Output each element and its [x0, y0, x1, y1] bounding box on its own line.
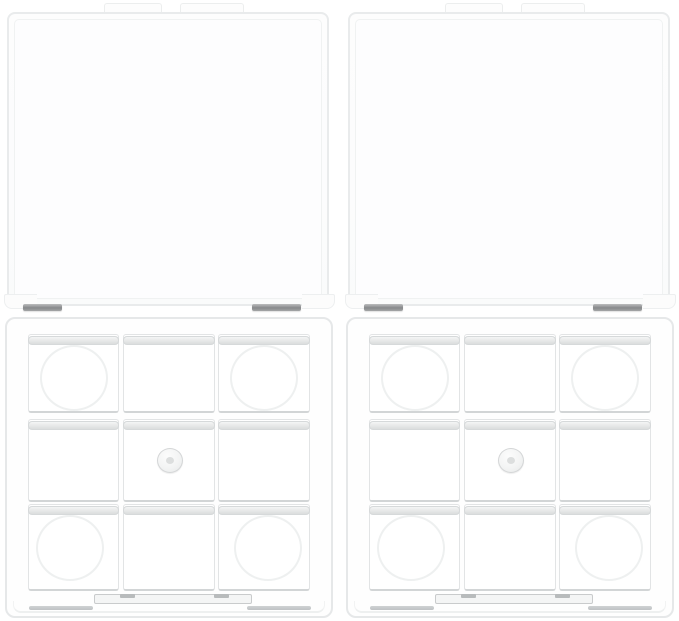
well-lip [123, 506, 215, 515]
pan-well-r1c2 [123, 334, 215, 413]
base-tray [5, 317, 333, 618]
magnet-button-dot [507, 457, 515, 464]
well-lip [218, 421, 310, 430]
well-lip [369, 421, 460, 430]
palette-right [343, 0, 677, 621]
pan-well-r3c3 [559, 504, 651, 591]
round-pan-recess [36, 515, 104, 581]
pan-well-r2c2 [464, 419, 556, 502]
pan-well-r1c1 [28, 334, 119, 413]
pan-well-r3c1 [28, 504, 119, 591]
pan-well-r3c2 [123, 504, 215, 591]
pan-well-r2c1 [28, 419, 119, 502]
latch-bar [435, 594, 593, 604]
well-lip [559, 336, 651, 345]
lid-inner-frame [14, 19, 322, 299]
pan-well-r1c3 [218, 334, 310, 413]
bottom-trim-line-right [588, 606, 652, 610]
latch-notch [120, 594, 135, 598]
round-pan-recess [377, 515, 445, 581]
well-lip [218, 506, 310, 515]
round-pan-recess [381, 345, 449, 411]
hinge-pin-right [252, 304, 301, 311]
well-lip [464, 336, 556, 345]
pan-well-r1c2 [464, 334, 556, 413]
well-lip [218, 336, 310, 345]
well-lip [559, 506, 651, 515]
latch-notch [214, 594, 229, 598]
hinge-pin-right [593, 304, 642, 311]
round-pan-recess [575, 515, 643, 581]
magnet-button-dot [166, 457, 174, 464]
magnet-button [157, 448, 183, 473]
open-lid [7, 12, 329, 306]
well-lip [28, 336, 119, 345]
pan-well-r3c1 [369, 504, 460, 591]
pan-well-r3c3 [218, 504, 310, 591]
lid-corner-flange-right [643, 294, 676, 309]
round-pan-recess [230, 345, 298, 411]
pan-well-r2c2 [123, 419, 215, 502]
base-tray [346, 317, 674, 618]
round-pan-recess [571, 345, 639, 411]
pan-well-r1c1 [369, 334, 460, 413]
pan-well-r3c2 [464, 504, 556, 591]
well-lip [369, 336, 460, 345]
lid-corner-flange-right [302, 294, 335, 309]
bottom-trim-line-right [247, 606, 311, 610]
well-lip [28, 421, 119, 430]
hinge-pin-left [364, 304, 403, 311]
well-lip [123, 336, 215, 345]
latch-notch [555, 594, 570, 598]
hinge-pin-left [23, 304, 62, 311]
well-lip [28, 506, 119, 515]
round-pan-recess [40, 345, 108, 411]
well-lip [369, 506, 460, 515]
well-lip [123, 421, 215, 430]
pan-well-r2c1 [369, 419, 460, 502]
palette-left [2, 0, 336, 621]
well-lip [559, 421, 651, 430]
latch-bar [94, 594, 252, 604]
latch-notch [461, 594, 476, 598]
magnet-button [498, 448, 524, 473]
bottom-trim-line-left [29, 606, 93, 610]
well-lip [464, 421, 556, 430]
pan-well-r2c3 [218, 419, 310, 502]
pan-well-r2c3 [559, 419, 651, 502]
open-lid [348, 12, 670, 306]
photo-caption: Two identical empty clear transparent pl… [0, 16, 1, 17]
round-pan-recess [234, 515, 302, 581]
lid-inner-frame [355, 19, 663, 299]
product-photo: Two identical empty clear transparent pl… [0, 0, 679, 621]
well-lip [464, 506, 556, 515]
pan-well-r1c3 [559, 334, 651, 413]
bottom-trim-line-left [370, 606, 434, 610]
